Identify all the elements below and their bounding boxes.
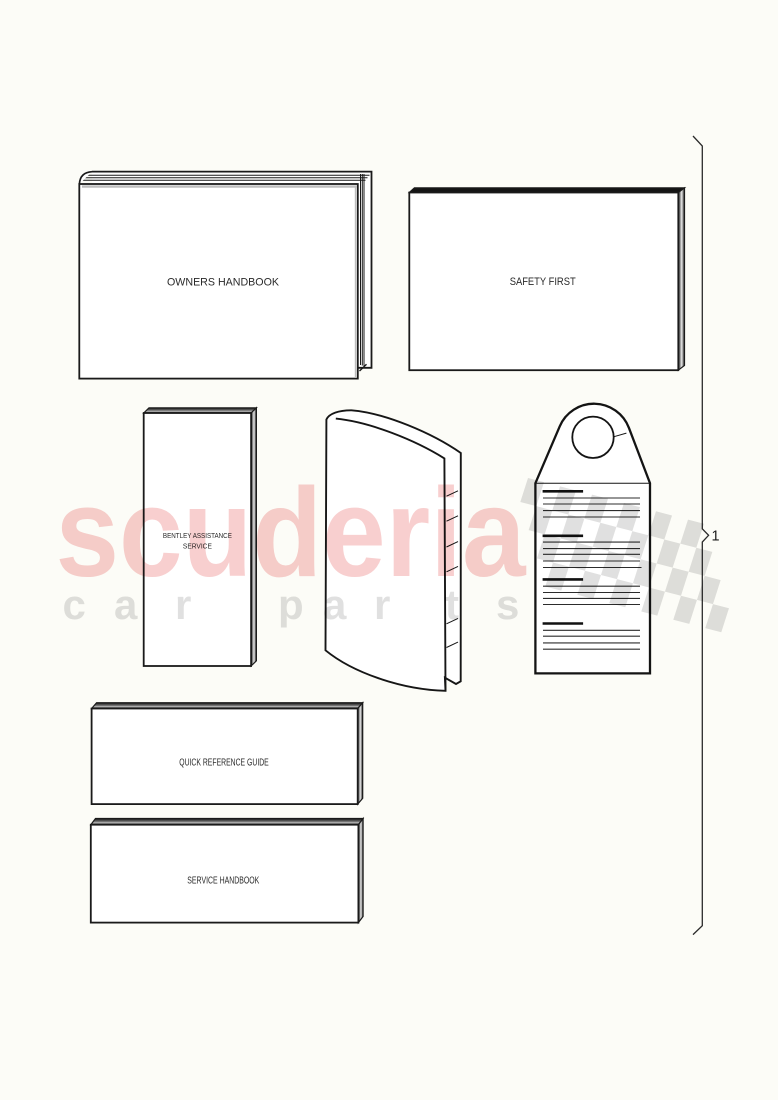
svg-text:QUICK REFERENCE GUIDE: QUICK REFERENCE GUIDE [179,757,269,768]
svg-text:OWNERS HANDBOOK: OWNERS HANDBOOK [167,276,279,288]
svg-text:SAFETY FIRST: SAFETY FIRST [510,276,576,288]
svg-text:SERVICE HANDBOOK: SERVICE HANDBOOK [187,875,259,886]
svg-text:1: 1 [712,529,720,545]
svg-text:carparts: carparts [63,581,520,628]
